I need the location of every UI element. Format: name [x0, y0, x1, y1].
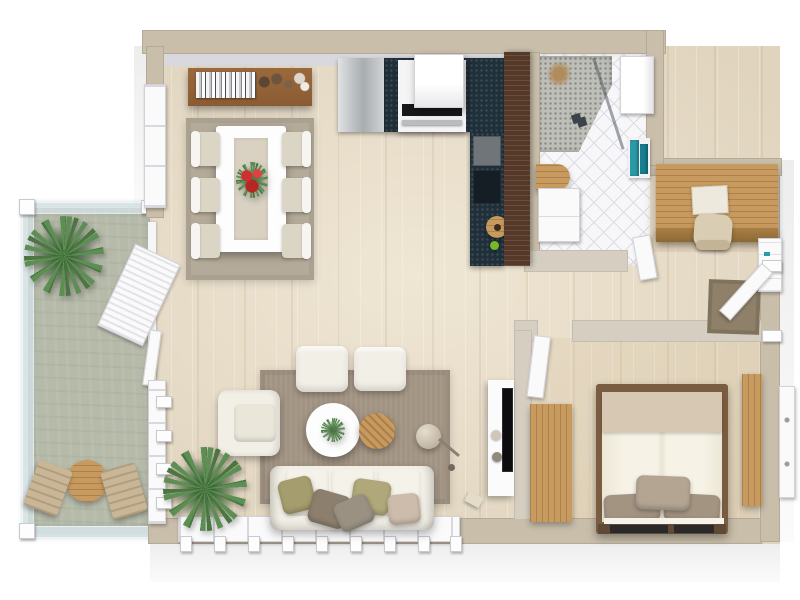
window-post	[248, 536, 260, 552]
dining-chair	[282, 224, 308, 258]
bathroom-wall-cabinet	[620, 56, 654, 114]
green-bottle	[490, 241, 499, 250]
bed-cushion-center	[635, 475, 690, 511]
headboard-dark-segment	[610, 525, 668, 533]
window-post	[418, 536, 430, 552]
ottoman	[354, 347, 406, 391]
window-post	[450, 536, 462, 552]
bathroom-vanity-top	[536, 164, 570, 190]
window-post	[316, 536, 328, 552]
sofa-cushion-taupe	[387, 492, 422, 525]
floor-lamp-shade	[416, 424, 441, 449]
ottoman	[296, 346, 348, 392]
dining-chair	[194, 178, 220, 212]
bed-blanket	[602, 392, 722, 432]
window-post	[180, 536, 192, 552]
balcony-railing-bottom	[22, 526, 154, 538]
towel	[630, 140, 639, 176]
living-palm-plant	[163, 447, 247, 531]
dining-chair	[194, 224, 220, 258]
headboard-dark-segment	[674, 525, 714, 533]
railing-post-bottom-left	[19, 523, 35, 539]
towel	[640, 144, 648, 174]
tv-console-knob	[492, 452, 502, 462]
bedroom-tall-cabinet	[742, 374, 762, 506]
railing-post-top-left	[19, 199, 35, 215]
floor-plan-canvas	[0, 0, 800, 600]
window-post	[214, 536, 226, 552]
bedroom-wardrobe	[530, 404, 572, 522]
kitchen-cabinet-dark	[473, 170, 501, 204]
window-post	[384, 536, 396, 552]
refrigerator	[338, 58, 384, 132]
dining-chair	[194, 132, 220, 166]
dining-window	[144, 84, 166, 208]
dining-chair	[282, 132, 308, 166]
sideboard-books	[196, 72, 256, 98]
outer-face-bottom	[150, 542, 780, 582]
window-post	[156, 396, 172, 408]
sideboard-vases	[258, 70, 310, 100]
window-post	[156, 430, 172, 442]
entry-door-frame	[762, 330, 782, 342]
bedroom-window-shutter	[779, 386, 795, 498]
laptop	[691, 185, 728, 215]
coffee-table-plant	[321, 418, 345, 442]
hall-cabinet-teal-accent	[764, 252, 770, 256]
bathroom-vanity-cabinet	[538, 188, 580, 242]
range-hood	[414, 54, 464, 108]
balcony-railing-top	[22, 202, 154, 214]
centerpiece-red-flowers	[240, 168, 264, 194]
wall-bathroom-bottom	[524, 250, 628, 272]
tv	[502, 388, 513, 472]
oven-handle	[402, 120, 462, 125]
balcony-palm-plant	[24, 216, 104, 296]
wall-top	[142, 30, 666, 54]
desk-chair-back	[696, 240, 730, 250]
kitchen-bar-panel	[504, 52, 530, 266]
floor-lamp-base	[448, 464, 455, 471]
dining-chair	[282, 178, 308, 212]
tv-console-knob	[491, 430, 501, 440]
side-table-wood	[359, 413, 395, 449]
window-post	[350, 536, 362, 552]
kitchen-bowl-center	[494, 224, 501, 231]
armchair-cushion	[234, 404, 276, 442]
kitchen-cabinet-grey	[473, 136, 501, 166]
window-post	[282, 536, 294, 552]
